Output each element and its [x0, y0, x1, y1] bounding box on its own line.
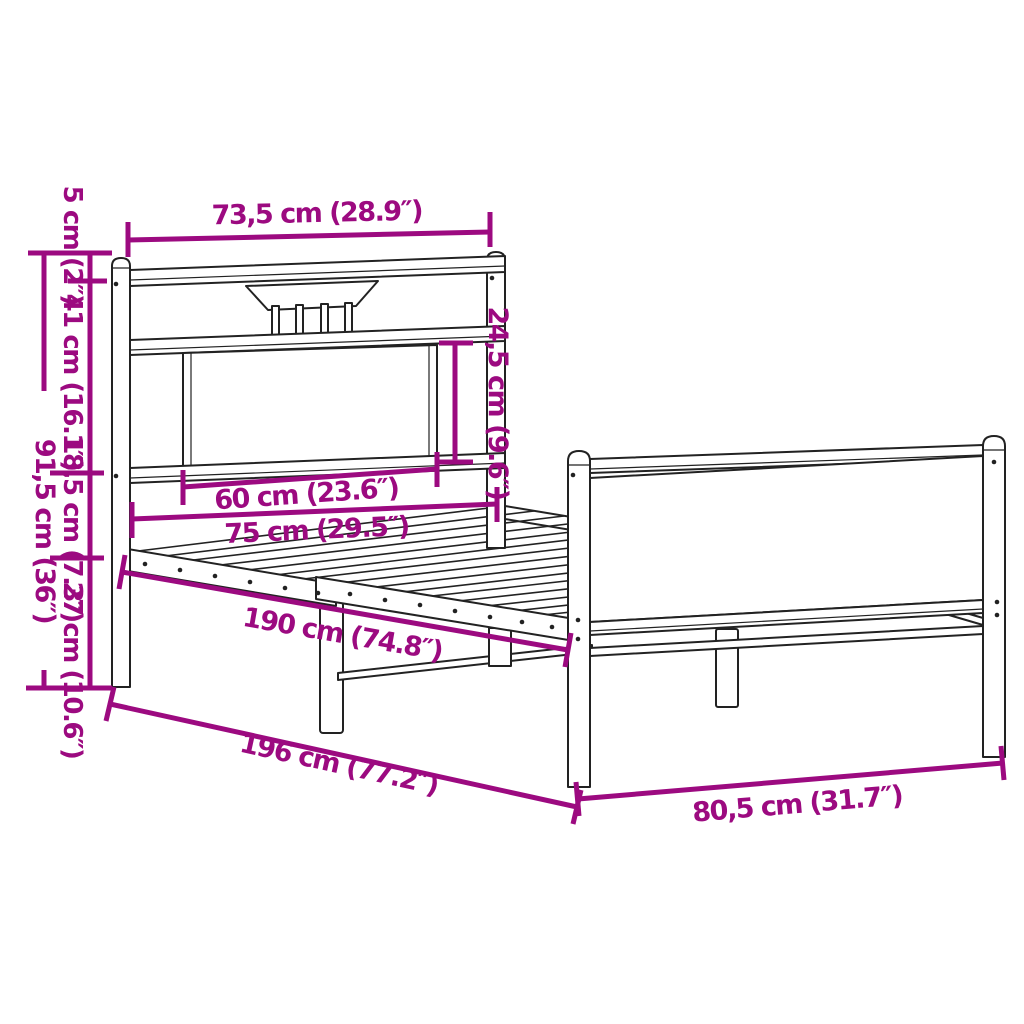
dim-panel-height-label: 24,5 cm (9.6″) — [482, 306, 513, 499]
dim-clearance-label: 27 cm (10.6″) — [57, 582, 87, 759]
diagram-canvas: 73,5 cm (28.9″) 91,5 cm (36″) 5 cm (2″) … — [0, 0, 1024, 1024]
footboard-far-post — [983, 436, 1005, 757]
rail-bracket — [489, 628, 511, 666]
dim-total-height-label: 91,5 cm (36″) — [29, 439, 60, 624]
footboard-panel — [590, 456, 983, 622]
bed-frame-dimension-diagram: 73,5 cm (28.9″) 91,5 cm (36″) 5 cm (2″) … — [0, 0, 1024, 1024]
dim-headboard-width-label: 73,5 cm (28.9″) — [211, 196, 422, 232]
headboard-left-post — [112, 258, 130, 687]
dim-post-cap-label: 5 cm (2″) — [57, 186, 87, 305]
headboard-panel — [183, 345, 437, 469]
